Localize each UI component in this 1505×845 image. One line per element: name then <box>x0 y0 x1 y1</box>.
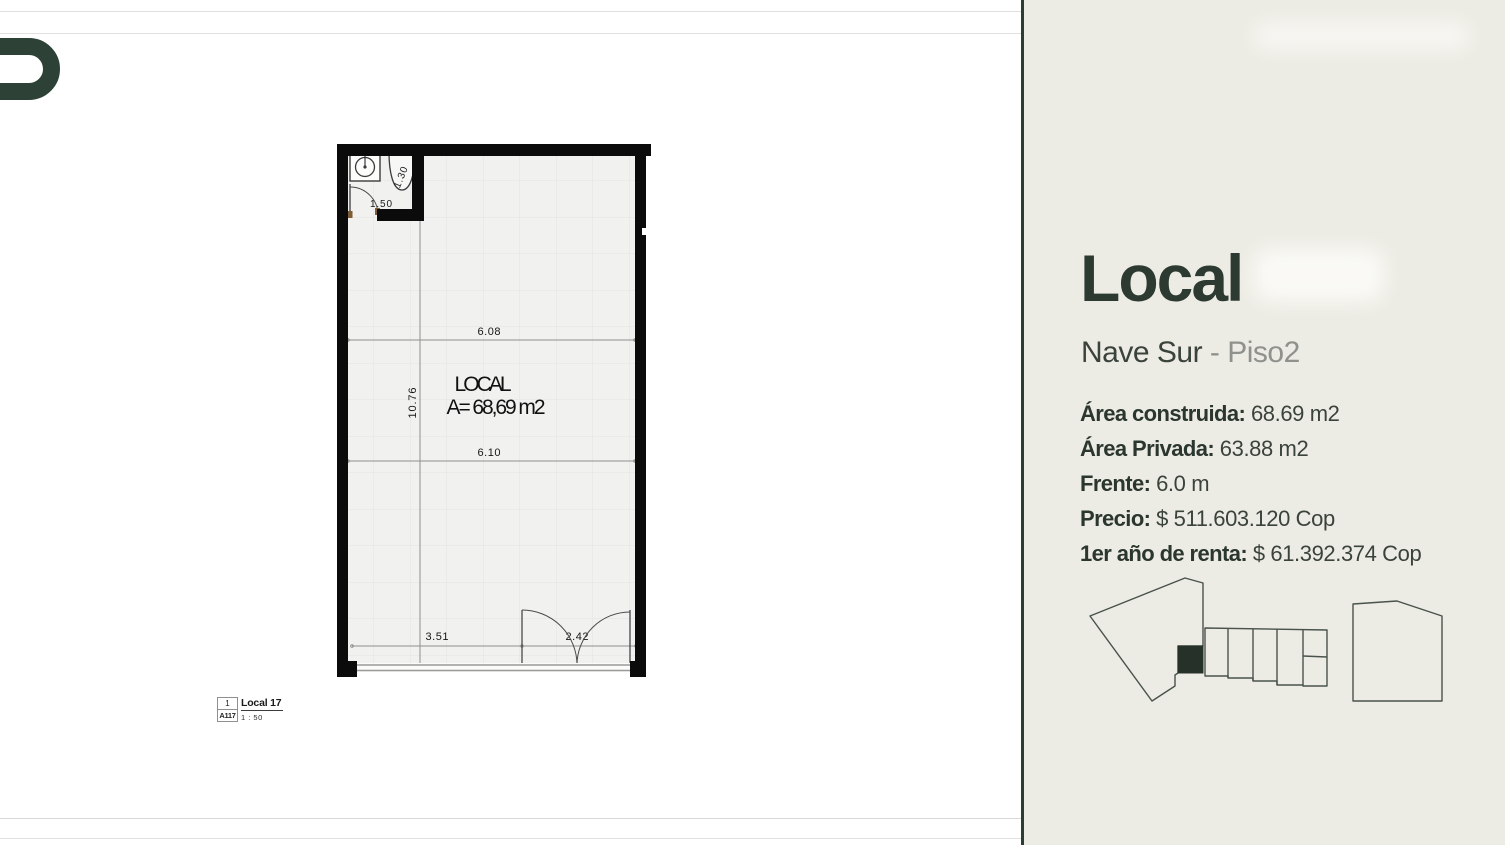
spec-built-area: Área construida: 68.69 m2 <box>1080 396 1421 431</box>
room-name-label: LOCAL <box>455 373 512 396</box>
unit-title: Local <box>1080 245 1242 311</box>
view-scale: 1 : 50 <box>241 713 283 722</box>
redaction-blur-title <box>1253 248 1385 302</box>
spec-price: Precio: $ 511.603.120 Cop <box>1080 501 1421 536</box>
page: 6.08 6.10 10.76 3.51 2.42 LOCAL A= 68,69… <box>0 0 1505 845</box>
spec-first-year-rent: 1er año de renta: $ 61.392.374 Cop <box>1080 536 1421 571</box>
brand-logo-icon <box>0 38 60 100</box>
dim-bottom-left-label: 3.51 <box>426 631 449 643</box>
spec-frontage: Frente: 6.0 m <box>1080 466 1421 501</box>
unit-subtitle: Nave Sur - Piso2 <box>1081 336 1300 370</box>
spec-private-area: Área Privada: 63.88 m2 <box>1080 431 1421 466</box>
site-plan <box>1085 573 1460 713</box>
view-title-block: 1 A117 Local 17 1 : 50 <box>217 697 283 722</box>
unit-row <box>1205 628 1327 686</box>
highlighted-unit <box>1178 646 1203 673</box>
sheet-border-top-inner <box>0 33 1022 34</box>
sheet-border-top-outer <box>0 11 1022 12</box>
unit-location: Nave Sur <box>1081 336 1202 369</box>
room-area-label: A= 68,69 m2 <box>447 396 546 419</box>
dim-width-top-label: 6.08 <box>478 326 501 338</box>
dim-width-mid-label: 6.10 <box>478 447 501 459</box>
storefront-glazing <box>357 663 630 672</box>
unit-floor: - Piso2 <box>1210 336 1300 369</box>
view-name: Local 17 <box>241 697 283 711</box>
sheet-border-bottom-outer <box>0 838 1022 839</box>
dim-height-label: 10.76 <box>407 388 419 419</box>
redaction-blur-top <box>1254 22 1470 50</box>
floor-plan: 6.08 6.10 10.76 3.51 2.42 LOCAL A= 68,69… <box>337 144 652 679</box>
sheet-ref: A117 <box>218 710 237 721</box>
dim-bath-door-label: 1.50 <box>370 199 392 210</box>
sheet-border-bottom-inner <box>0 818 1022 819</box>
view-reference-box: 1 A117 <box>217 697 238 722</box>
spec-list: Área construida: 68.69 m2 Área Privada: … <box>1080 396 1421 571</box>
details-panel: Local Nave Sur - Piso2 Área construida: … <box>1024 0 1505 845</box>
building-east <box>1353 601 1442 701</box>
wall-notch <box>642 228 646 235</box>
view-number: 1 <box>218 698 237 710</box>
building-wedge <box>1090 578 1203 701</box>
